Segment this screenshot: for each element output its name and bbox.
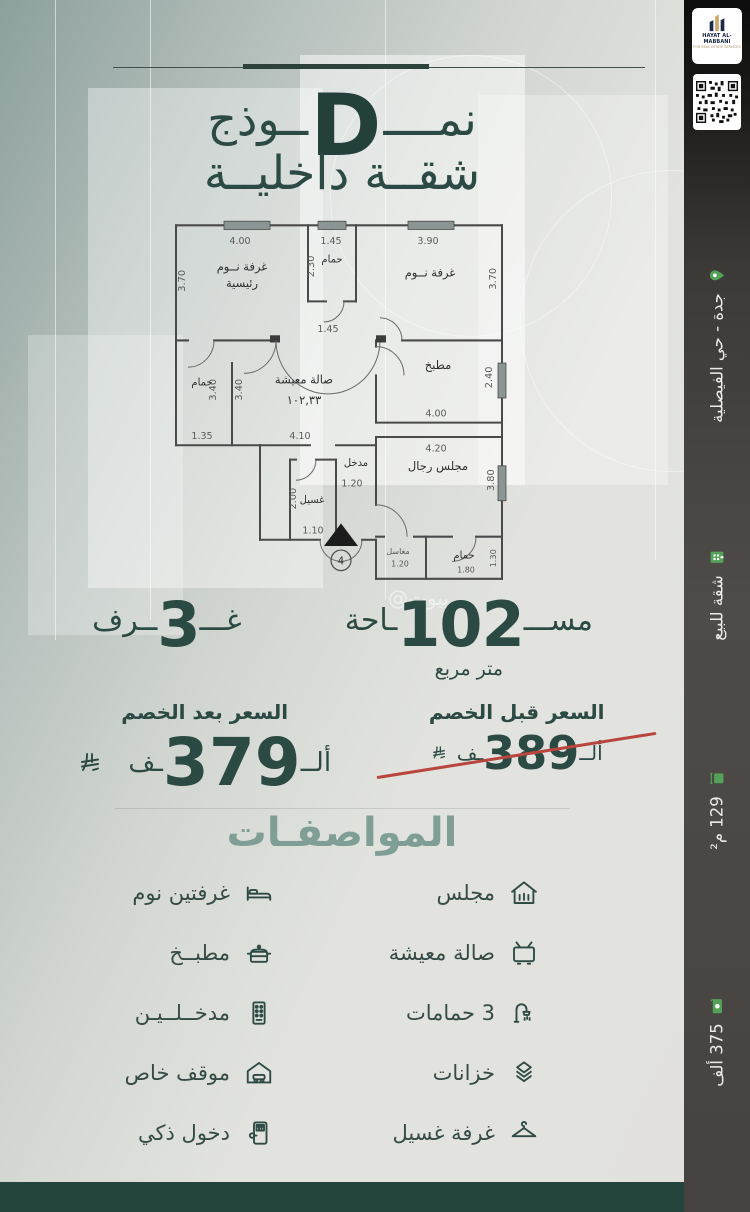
price-before-prefix: ألــ	[579, 741, 602, 765]
spec-item-bedrooms: غرفتين نوم	[70, 874, 275, 911]
area-unit: متر مربع	[435, 658, 504, 680]
dim: 1.20	[341, 478, 362, 489]
spec-label: موقف خاص	[125, 1061, 230, 1085]
area-word-prefix: مســـ	[524, 606, 593, 636]
sidebar-item-price: 375 ألف	[708, 997, 727, 1086]
dim: 4.10	[289, 431, 310, 442]
building-icon	[709, 549, 726, 566]
dim: 3.40	[234, 379, 245, 401]
price-before-value: 389	[483, 730, 579, 776]
sidebar-price-label: 375 ألف	[708, 1023, 727, 1086]
spec-item-majlis: مجلس	[335, 874, 540, 911]
door-marker: 4	[338, 556, 344, 567]
room-laundry: غسيل	[300, 495, 325, 506]
logo-bars-icon	[705, 11, 729, 33]
spec-label: غرفة غسيل	[393, 1121, 496, 1145]
sidebar-item-listing-type: شقة للبيع	[708, 549, 727, 641]
dim: 3.90	[417, 236, 438, 247]
spec-label: 3 حمامات	[406, 1001, 495, 1025]
qr-code	[693, 74, 741, 130]
floor-plan-drawing: 4 غرفة نــوم رئيسية حمام غرفة نــوم صالة…	[170, 213, 510, 585]
rooms-word-prefix: غـــ	[199, 606, 241, 636]
dim: 3.70	[488, 268, 499, 290]
dim: 1.30	[488, 549, 498, 567]
model-title: نمــــ D ــوذج	[0, 82, 684, 155]
logo-subtitle: FOR REAL ESTATE SERVICES	[693, 45, 740, 49]
sidebar-listing-type-label: شقة للبيع	[708, 575, 727, 641]
shower-icon	[508, 997, 540, 1029]
spec-item-entrances: مدخــلــيـن	[70, 994, 275, 1031]
garage-car-icon	[243, 1057, 275, 1089]
bottom-accent-bar	[0, 1182, 684, 1212]
dim: 4.20	[425, 443, 446, 454]
dim: 1.45	[317, 324, 338, 335]
kitchen-pot-icon	[243, 937, 275, 969]
area-value: 102	[397, 594, 523, 656]
sidebar: HAYAT AL-MABBANI FOR REAL ESTATE SERVICE…	[684, 0, 750, 1212]
saudi-riyal-icon	[431, 745, 447, 761]
price-after-label: السعر بعد الخصم	[30, 700, 379, 724]
spec-item-parking: موقف خاص	[70, 1054, 275, 1091]
dim: 3.40	[208, 379, 219, 401]
price-after-prefix: ألــ	[301, 748, 331, 778]
specs-title: المواصفـات	[0, 810, 684, 856]
room-living-area-value: ١٠٢,٣٣	[287, 393, 321, 407]
spec-label: غرفتين نوم	[132, 881, 230, 905]
entrance-keypad-icon	[243, 997, 275, 1029]
area-icon	[709, 770, 726, 787]
stats-row: غـــ 3 ــرف مســـ 102 ـاحة متر مربع	[40, 594, 644, 680]
logo-title: HAYAT AL-MABBANI	[692, 33, 742, 45]
dim: 1.80	[457, 565, 475, 575]
header-divider-accent	[243, 64, 429, 69]
spec-label: مدخــلــيـن	[135, 1001, 230, 1025]
section-divider	[115, 808, 570, 809]
spec-label: خزانات	[433, 1061, 495, 1085]
dim: 4.00	[229, 236, 250, 247]
dim: 1.20	[391, 558, 409, 568]
dim: 2.00	[288, 488, 299, 510]
sidebar-item-area: 129 م²	[708, 770, 727, 850]
room-bathroom-bottom: حمام	[453, 550, 474, 561]
spec-item-storage: خزانات	[335, 1054, 540, 1091]
spec-item-kitchen: مطبــخ	[70, 934, 275, 971]
backdrop-circle	[520, 170, 684, 472]
spec-label: صالة معيشة	[389, 941, 495, 965]
spec-label: دخول ذكي	[138, 1121, 230, 1145]
price-tag-icon	[709, 997, 726, 1014]
dim: 1.10	[302, 526, 323, 537]
dim: 3.70	[177, 270, 188, 292]
location-pin-icon	[709, 267, 726, 284]
tv-icon	[508, 937, 540, 969]
spec-item-laundry: غرفة غسيل	[335, 1114, 540, 1151]
dim: 1.45	[320, 236, 341, 247]
room-sinks: مغاسل	[386, 546, 409, 556]
sidebar-item-location: جدة - حي الفيصلية	[708, 267, 727, 423]
price-after-suffix: ـف	[128, 748, 163, 778]
room-entrance: مدخل	[344, 458, 368, 469]
entry-arrow-marker	[324, 523, 358, 546]
floor-plan: 4 غرفة نــوم رئيسية حمام غرفة نــوم صالة…	[170, 213, 510, 585]
area-word-suffix: ـاحة	[345, 606, 398, 636]
room-living: صالة معيشة	[275, 372, 333, 386]
rooms-count: 3	[157, 594, 199, 656]
model-title-prefix: نمــــ	[384, 96, 477, 142]
bed-icon	[243, 877, 275, 909]
model-title-suffix: ــوذج	[207, 96, 308, 142]
hanger-icon	[508, 1117, 540, 1149]
room-bathroom-top: حمام	[321, 254, 342, 265]
room-master-bedroom: غرفة نــوم	[217, 259, 268, 274]
rooms-stat: غـــ 3 ــرف	[40, 594, 294, 680]
area-stat: مســـ 102 ـاحة متر مربع	[294, 594, 644, 680]
dim: 1.35	[191, 431, 212, 442]
smart-lock-icon	[243, 1117, 275, 1149]
price-before-label: السعر قبل الخصم	[379, 700, 654, 724]
spec-item-smart-entry: دخول ذكي	[70, 1114, 275, 1151]
dim: 3.80	[486, 469, 497, 491]
room-kitchen: مطبخ	[425, 358, 451, 372]
spec-item-bathrooms: 3 حمامات	[335, 994, 540, 1031]
saudi-riyal-icon	[78, 751, 102, 775]
spec-label: مطبــخ	[169, 941, 230, 965]
dim: 2.40	[484, 367, 495, 389]
sidebar-area-label: 129 م²	[708, 796, 727, 850]
company-logo: HAYAT AL-MABBANI FOR REAL ESTATE SERVICE…	[692, 8, 742, 64]
rooms-word-suffix: ــرف	[92, 606, 157, 636]
dim: 2.30	[306, 256, 317, 278]
specs-grid: مجلس غرفتين نوم صالة معيشة مطبــخ	[70, 874, 540, 1151]
room-majlis: مجلس رجال	[408, 459, 468, 474]
majlis-house-icon	[508, 877, 540, 909]
spec-item-living: صالة معيشة	[335, 934, 540, 971]
sidebar-location-label: جدة - حي الفيصلية	[708, 293, 727, 423]
price-after-value: 379	[163, 730, 301, 796]
room-master-bedroom-2: رئيسية	[226, 276, 258, 291]
spec-label: مجلس	[436, 881, 495, 905]
main-panel: نمــــ D ــوذج شقــة داخليــة	[0, 0, 684, 1212]
price-before-discount: السعر قبل الخصم ألــ 389 ـف	[379, 700, 654, 796]
storage-boxes-icon	[508, 1057, 540, 1089]
dim: 4.00	[425, 408, 446, 419]
apartment-type-subtitle: شقــة داخليــة	[0, 150, 684, 197]
price-after-discount: السعر بعد الخصم ألــ 379 ـف	[30, 700, 379, 796]
qr-code-image	[696, 81, 738, 123]
room-bedroom: غرفة نــوم	[405, 266, 456, 281]
price-before-strikethrough: ألــ 389 ـف	[379, 730, 654, 776]
real-estate-flyer: نمــــ D ــوذج شقــة داخليــة	[0, 0, 750, 1212]
pricing-section: السعر بعد الخصم ألــ 379 ـف السعر قبل ال…	[30, 700, 654, 796]
price-before-suffix: ـف	[457, 741, 484, 765]
